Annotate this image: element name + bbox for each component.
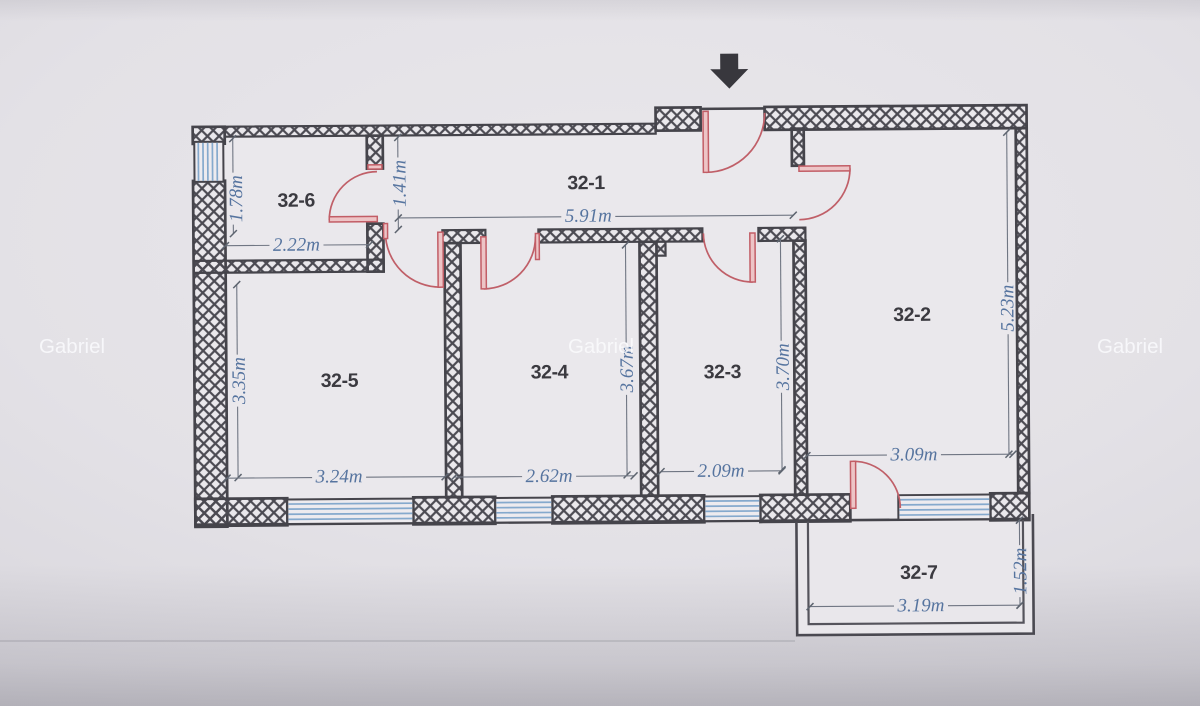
svg-text:2.62m: 2.62m xyxy=(526,466,573,487)
svg-text:2.22m: 2.22m xyxy=(273,235,320,256)
svg-text:32-7: 32-7 xyxy=(900,562,938,584)
svg-text:32-4: 32-4 xyxy=(531,361,569,383)
svg-text:32-2: 32-2 xyxy=(893,304,931,326)
svg-text:32-5: 32-5 xyxy=(321,370,359,392)
svg-text:32-3: 32-3 xyxy=(704,361,742,383)
svg-text:1.78m: 1.78m xyxy=(226,175,247,222)
svg-text:Gabriel: Gabriel xyxy=(39,335,105,358)
svg-text:3.24m: 3.24m xyxy=(315,466,363,487)
svg-text:3.35m: 3.35m xyxy=(229,357,250,405)
svg-text:3.70m: 3.70m xyxy=(773,343,794,391)
svg-text:3.19m: 3.19m xyxy=(896,595,944,616)
svg-text:1.52m: 1.52m xyxy=(1010,548,1031,595)
svg-text:32-1: 32-1 xyxy=(567,172,605,194)
svg-text:Gabriel: Gabriel xyxy=(568,335,634,358)
svg-text:3.09m: 3.09m xyxy=(889,444,937,465)
svg-text:32-6: 32-6 xyxy=(277,190,315,212)
svg-text:2.09m: 2.09m xyxy=(697,461,744,482)
svg-text:5.91m: 5.91m xyxy=(565,205,612,226)
svg-text:1.41m: 1.41m xyxy=(389,160,410,207)
svg-text:Gabriel: Gabriel xyxy=(1097,335,1163,358)
svg-text:5.23m: 5.23m xyxy=(997,285,1018,332)
